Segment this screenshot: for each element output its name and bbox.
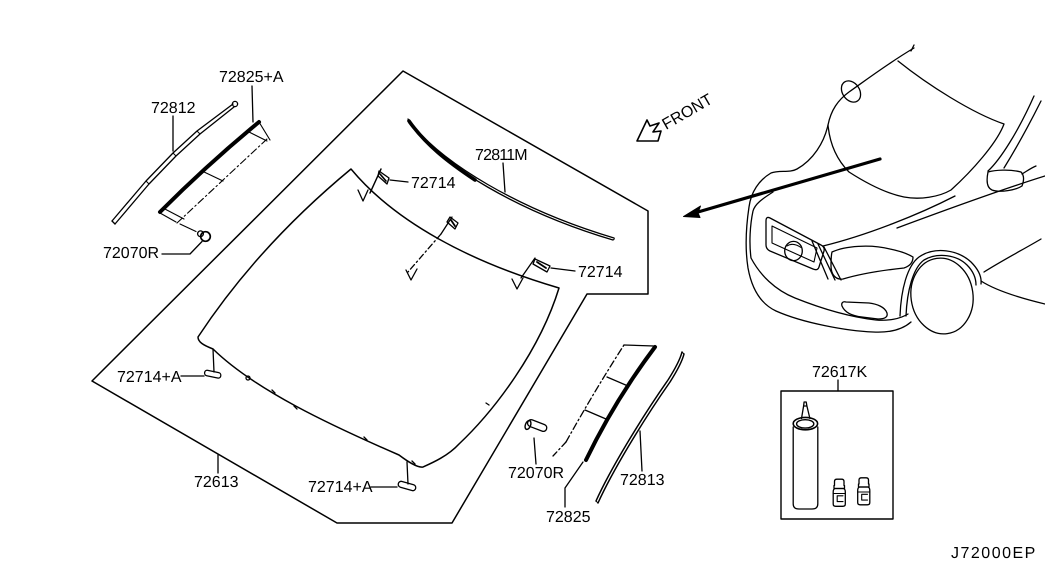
svg-text:72812: 72812 (151, 100, 196, 117)
svg-text:72714+A: 72714+A (117, 369, 182, 386)
svg-text:72617K: 72617K (812, 364, 867, 381)
svg-text:72811M: 72811M (475, 147, 527, 164)
svg-text:72613: 72613 (194, 474, 239, 491)
svg-text:72714+A: 72714+A (308, 479, 373, 496)
svg-text:J72000EP: J72000EP (951, 545, 1037, 562)
svg-text:FRONT: FRONT (660, 91, 716, 133)
svg-text:72070R: 72070R (103, 245, 159, 262)
svg-text:72714: 72714 (578, 264, 623, 281)
svg-text:72070R: 72070R (508, 465, 564, 482)
svg-text:72813: 72813 (620, 472, 665, 489)
svg-text:72714: 72714 (411, 175, 456, 192)
svg-text:72825+A: 72825+A (219, 69, 284, 86)
svg-text:72825: 72825 (546, 509, 591, 526)
